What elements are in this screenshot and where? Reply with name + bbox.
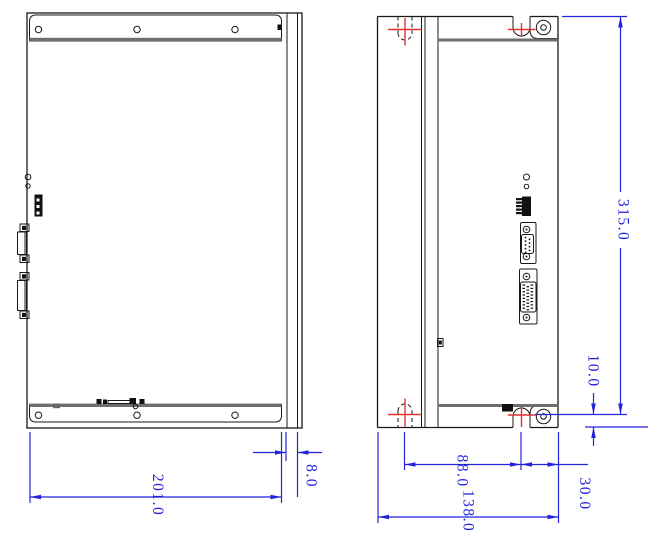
mounting-hole <box>35 412 41 418</box>
terminal-block-side <box>35 195 43 217</box>
dim-slot-spacing: 88.0 30.0 <box>405 432 593 523</box>
db25-pins <box>523 285 534 311</box>
side-view <box>378 17 559 428</box>
strip-tab-mark <box>53 404 60 409</box>
strip-end-mark <box>278 25 282 31</box>
bottom-switch <box>502 404 513 412</box>
dim-text-overall-depth: 138.0 <box>459 490 476 532</box>
front-view-outline <box>27 13 302 428</box>
db9-connector <box>521 223 537 264</box>
bottom-edge-components <box>97 398 145 409</box>
bottom-mounting-ear <box>530 406 558 428</box>
dim-hole-to-bottom: 10.0 <box>584 354 648 446</box>
mounting-hole <box>232 412 238 418</box>
top-mounting-strip <box>30 15 282 41</box>
ear-hole-boss <box>536 409 550 423</box>
dim-text-notch-to-edge: 30.0 <box>576 477 593 510</box>
front-view <box>18 13 303 428</box>
top-mounting-ear <box>530 17 558 39</box>
front-left-edge-components <box>18 174 43 318</box>
db25-connector <box>520 269 538 324</box>
two-view-dimension-drawing: 201.0 8.0 315.0 <box>0 0 650 542</box>
technical-drawing-canvas: 201.0 8.0 315.0 <box>0 0 650 542</box>
mounting-hole <box>232 26 238 32</box>
dim-overall-height: 315.0 <box>535 17 631 415</box>
dim-text-slot-spacing: 88.0 <box>453 454 470 487</box>
mounting-hole <box>134 26 140 32</box>
dim-text-plate-width: 201.0 <box>149 474 166 516</box>
bottom-mounting-strip <box>30 404 282 422</box>
dim-flange-depth: 8.0 <box>253 432 322 497</box>
status-led <box>25 174 31 180</box>
db9-pins <box>525 237 531 254</box>
ear-hole-boss <box>536 20 550 34</box>
mounting-ear-hole-top <box>541 25 547 31</box>
dim-plate-width: 201.0 <box>30 432 282 516</box>
dim-text-flange-depth: 8.0 <box>302 464 319 488</box>
status-led <box>524 174 530 180</box>
dimension-annotations: 201.0 8.0 315.0 <box>30 17 648 533</box>
terminal-block-connector <box>516 197 531 217</box>
status-led <box>524 184 529 189</box>
mounting-hole <box>134 412 140 418</box>
dim-text-overall-height: 315.0 <box>614 199 631 241</box>
dim-text-hole-to-bottom: 10.0 <box>584 354 601 387</box>
side-face-components <box>438 174 538 412</box>
mounting-hole <box>35 26 41 32</box>
centerline-marks <box>388 18 536 427</box>
